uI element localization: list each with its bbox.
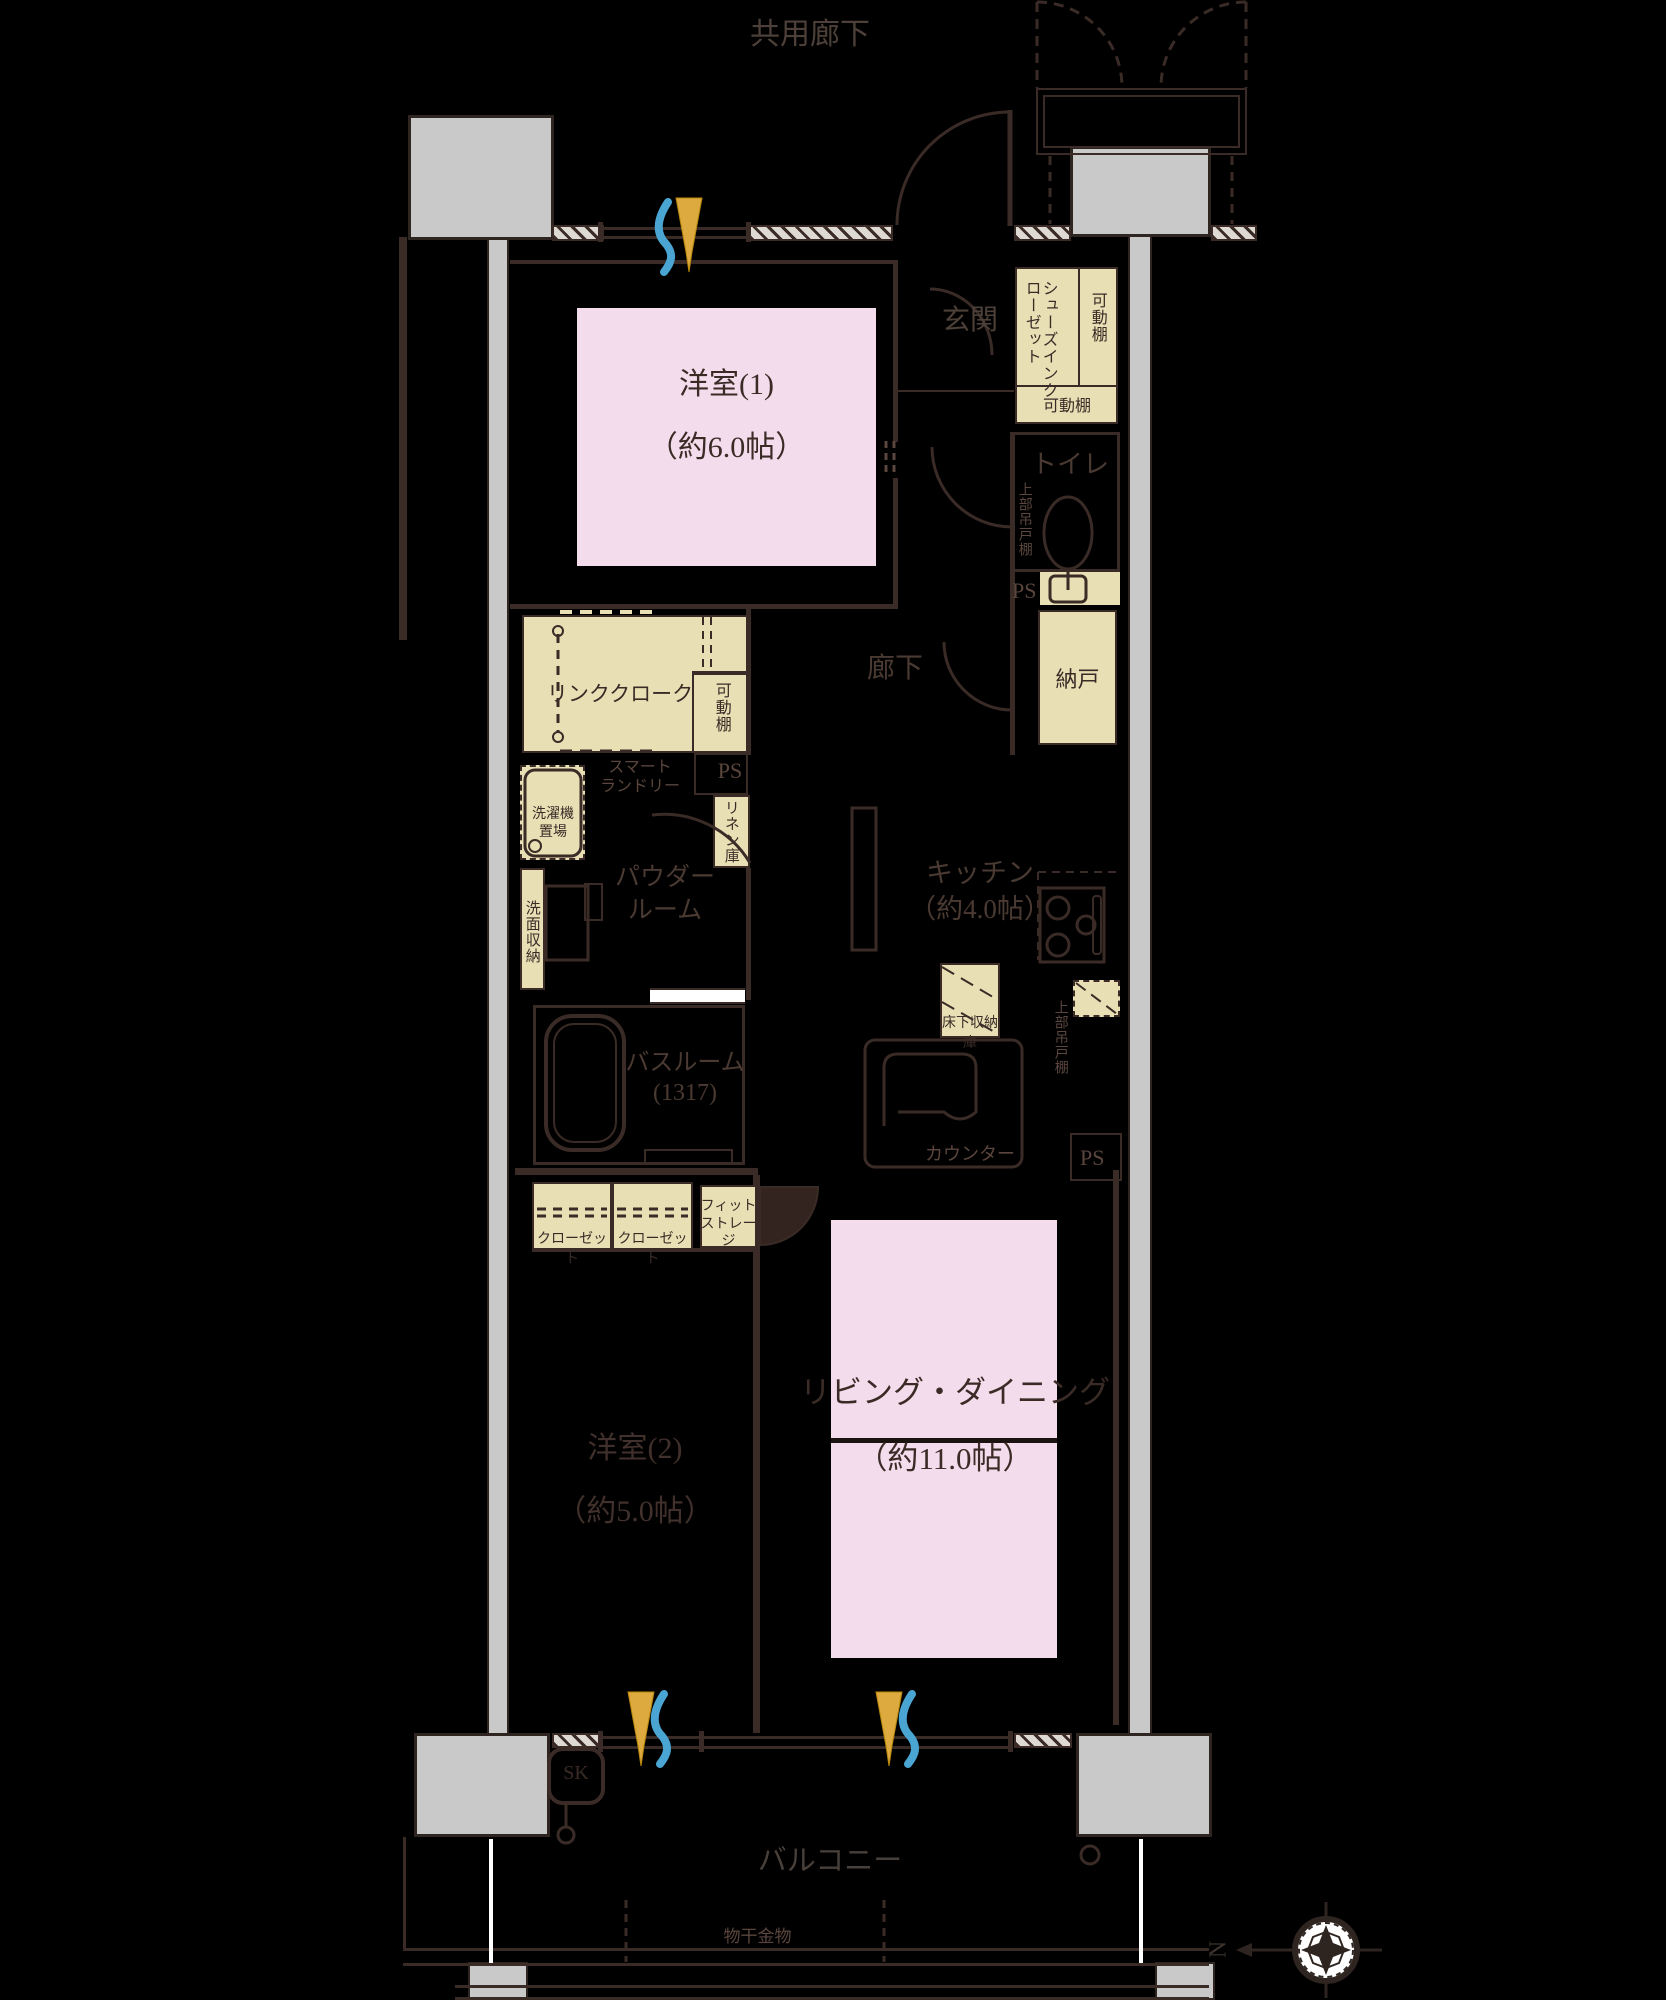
bathroom-label: バスルーム (1317)	[625, 1048, 745, 1108]
link-cloak-label: リンククローク	[545, 678, 695, 708]
breeze-icon	[659, 198, 702, 272]
kitchen-sink	[884, 1054, 976, 1126]
meter-box-door-arc	[1037, 2, 1122, 87]
balcony-drain	[1081, 1846, 1099, 1864]
breeze-icon	[876, 1692, 915, 1766]
vanity-storage-label: 洗面収納	[523, 900, 539, 986]
counter-label: カウンター	[915, 1140, 1025, 1166]
room1-label: 洋室(1) （約6.0帖）	[600, 368, 853, 465]
floor-plan: 共用廊下 玄関 シューズインクローゼット 可動棚 可動棚 トイレ 上部吊戸棚 P…	[0, 0, 1666, 2000]
smart-laundry-label: スマート ランドリー	[595, 758, 685, 796]
room2-label: 洋室(2) （約5.0帖）	[555, 1432, 715, 1529]
movable-shelf-label: 可動棚	[1022, 392, 1112, 416]
balcony-label: バルコニー	[745, 1845, 915, 1878]
toilet-door-arc	[932, 447, 1012, 527]
room2-door	[760, 1187, 818, 1245]
linen-label: リネン庫	[722, 800, 738, 866]
closet-label: クローゼット	[612, 1228, 693, 1268]
bath-step	[645, 1150, 732, 1163]
common-corridor-label: 共用廊下	[690, 18, 930, 53]
underfloor-label: 床下収納庫	[938, 1012, 1002, 1052]
toilet-bowl	[1044, 497, 1092, 569]
washer-drain	[529, 840, 541, 852]
meter-box-door-arc	[1161, 2, 1246, 87]
bathtub	[546, 1016, 624, 1150]
ps-label: PS	[712, 758, 748, 784]
storage-door-arc	[944, 642, 1012, 710]
washer-label: 洗濯機 置場	[524, 806, 582, 841]
compass-north-label: N	[1206, 1937, 1233, 1963]
ps-label: PS	[1080, 1145, 1116, 1171]
hanger-pipe-end	[553, 732, 563, 742]
cupboard-dash	[1076, 983, 1117, 1014]
living-dining-label: リビング・ダイニング （約11.0帖）	[800, 1375, 1090, 1476]
slop-sink-label: SK	[556, 1762, 596, 1785]
movable-shelf-label: 可動棚	[1088, 292, 1105, 372]
vanity-sink	[546, 886, 588, 960]
bathtub-inner	[554, 1024, 616, 1142]
powder-room-label: パウダー ルーム	[595, 862, 735, 927]
shoes-closet-label: シューズインクローゼット	[1022, 280, 1056, 410]
kitchen-door-leaf	[852, 808, 876, 950]
storage-room-label: 納戸	[1038, 662, 1117, 694]
closet-label: クローゼット	[532, 1228, 612, 1268]
corridor-label: 廊下	[855, 653, 935, 685]
laundry-hardware-label: 物干金物	[710, 1922, 805, 1947]
fixtures-layer	[0, 0, 1666, 2000]
movable-shelf-label: 可動棚	[712, 682, 729, 752]
breeze-icon	[628, 1692, 667, 1766]
slop-sink-drain	[558, 1827, 574, 1843]
compass-icon	[1236, 1902, 1382, 1998]
closet-pipe-dash	[537, 1209, 688, 1216]
genkan-label: 玄関	[920, 305, 1020, 337]
burner	[1047, 934, 1069, 956]
entrance-door-arc	[897, 112, 1010, 225]
upper-cabinet-label: 上部吊戸棚	[1052, 1000, 1067, 1100]
fit-storage-label: フィット ストレージ	[698, 1198, 759, 1251]
upper-cabinet-label: 上部吊戸棚	[1016, 482, 1031, 582]
ps-label: PS	[1012, 578, 1042, 604]
toilet-label: トイレ	[1030, 450, 1110, 480]
kitchen-label: キッチン （約4.0帖）	[895, 855, 1065, 928]
